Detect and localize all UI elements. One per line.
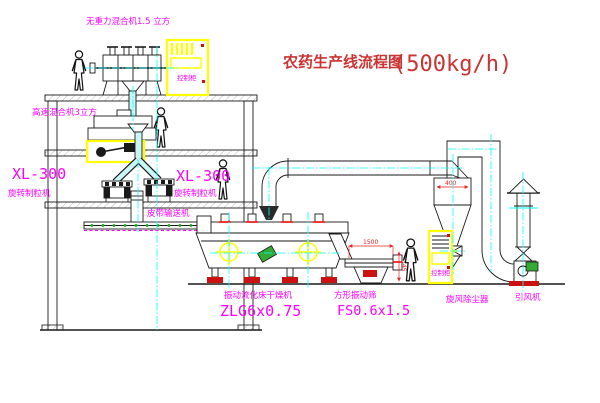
cabinet-top-label: 控制柜	[177, 73, 197, 82]
label-granulator-left: XL-300 旋转制粒机	[8, 165, 66, 199]
mixer2-discharge-pipe	[135, 132, 142, 162]
svg-text:旋转制粒机: 旋转制粒机	[8, 188, 51, 199]
svg-text:ZLG6x0.75: ZLG6x0.75	[220, 302, 301, 320]
title-capacity: (500kg/h)	[393, 52, 512, 77]
stack-rain-cap	[509, 179, 538, 193]
page-title: 农药生产线流程图 (500kg/h)	[282, 52, 512, 77]
indicator-light-icon	[201, 44, 204, 47]
label-fan: 引风机	[515, 292, 541, 303]
label-cyclone: 旋风除尘器	[446, 294, 489, 305]
fluid-bed-dryer	[196, 206, 349, 283]
svg-text:振动流化床干燥机: 振动流化床干燥机	[224, 290, 293, 301]
gravity-free-mixer	[90, 47, 175, 118]
worker-figure	[154, 108, 167, 147]
cyclone-inlet-transition	[452, 161, 468, 178]
exhaust-stack	[507, 179, 540, 261]
svg-text:1500: 1500	[363, 239, 378, 246]
duct-bottom-elbow	[482, 250, 514, 282]
column-footing-left	[42, 325, 63, 330]
label-belt-conveyor: 皮带输送机	[147, 208, 190, 219]
column-footing-right	[238, 325, 259, 330]
fan-motor	[526, 262, 538, 271]
svg-text:方形振动筛: 方形振动筛	[334, 290, 377, 301]
label-top-mixer: 无重力混合机1.5 立方	[86, 16, 170, 27]
floor-slab-1	[45, 95, 257, 101]
label-sieve: 方形振动筛 FS0.6x1.5	[334, 290, 410, 319]
vibrating-sieve: 1500 345	[345, 239, 407, 283]
belt-conveyor	[84, 222, 210, 231]
svg-text:XL-300: XL-300	[12, 165, 66, 183]
induced-draft-fan	[509, 261, 539, 286]
column-left	[48, 101, 57, 330]
floor-slab-2	[45, 150, 257, 156]
svg-text:FS0.6x1.5: FS0.6x1.5	[337, 303, 410, 319]
control-cabinet-top: 控制柜	[167, 40, 208, 95]
indicator-light-icon	[447, 234, 450, 237]
mixer-top-ports	[107, 47, 160, 55]
svg-text:400: 400	[445, 180, 457, 187]
floor-slab-3	[45, 202, 257, 208]
indicator-light-icon	[202, 80, 205, 83]
dryer-hood	[197, 222, 348, 233]
cad-drawing-canvas: 控制柜	[0, 0, 600, 403]
control-cabinet-right: 控制柜	[429, 231, 452, 283]
indicator-light-icon	[447, 266, 450, 269]
cabinet-right-label: 控制柜	[431, 268, 451, 277]
dryer-support-feet	[207, 268, 337, 283]
granulator-left-machine	[102, 181, 132, 202]
dryer-inlet-box	[197, 216, 211, 233]
granulator-right-machine	[144, 179, 174, 202]
svg-text:XL-300: XL-300	[176, 167, 230, 185]
svg-text:旋转制粒机: 旋转制粒机	[174, 188, 217, 199]
worker-figure	[404, 239, 418, 281]
label-dryer: 振动流化床干燥机 ZLG6x0.75	[220, 290, 301, 320]
worker-figure	[72, 51, 85, 90]
label-high-speed-mixer: 高速混合机3立方	[32, 107, 97, 118]
sieve-length-dimension: 1500	[349, 239, 393, 258]
fan-base	[509, 281, 539, 286]
title-chinese: 农药生产线流程图	[282, 53, 403, 71]
